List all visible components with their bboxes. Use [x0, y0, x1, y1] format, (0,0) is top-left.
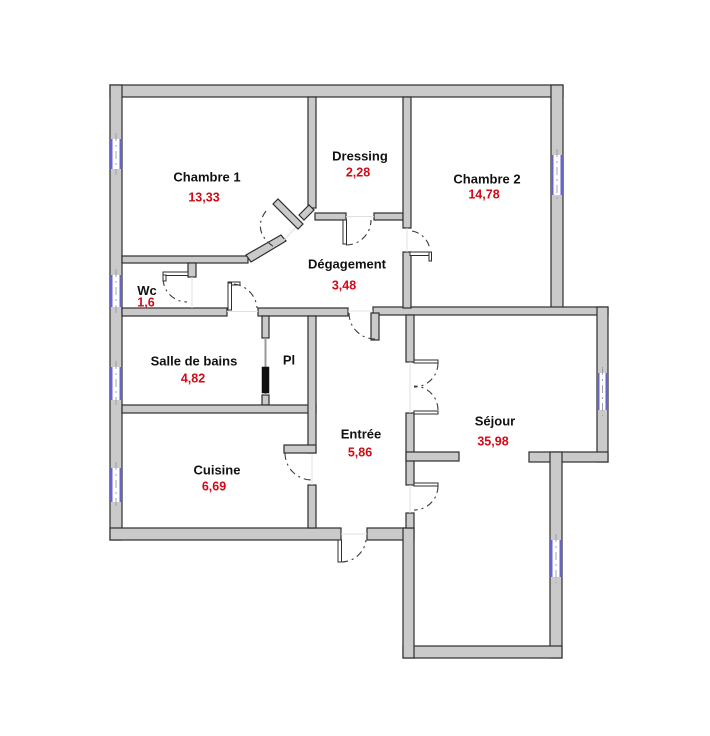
floor-plan: Chambre 1 13,33 Dressing 2,28 Chambre 2 …: [0, 0, 710, 736]
room-area-salle-de-bains: 4,82: [181, 372, 205, 386]
room-area-degagement: 3,48: [332, 279, 356, 293]
wall-segment: [403, 252, 411, 308]
wall-segment-chamfer: [246, 235, 286, 262]
door-cuisine: [284, 445, 316, 480]
sliding-door-icon: [262, 367, 269, 393]
room-label-degagement: Dégagement: [308, 257, 387, 272]
door-wc: [163, 272, 188, 302]
wall-segment: [406, 413, 414, 485]
wall-segment: [262, 395, 269, 405]
wall-segment: [374, 213, 403, 220]
wall-segment: [403, 97, 411, 228]
wall-segment: [122, 405, 316, 413]
room-label-entree: Entrée: [341, 427, 381, 442]
wall-segment: [551, 85, 563, 308]
wall-segment: [308, 97, 316, 208]
door-main-entrance: [338, 540, 366, 562]
wall-segment: [258, 308, 348, 316]
wall-segment: [110, 528, 341, 540]
wall-segment: [308, 485, 316, 528]
door-dressing: [343, 220, 371, 245]
window-sejour-right: [597, 367, 608, 416]
wall-segment: [403, 528, 414, 658]
wall-segment: [110, 85, 563, 97]
window-salle-de-bains: [110, 361, 122, 406]
room-area-chambre-2: 14,78: [468, 188, 499, 202]
door-degagement-entree: [349, 313, 379, 340]
door-chambre-2: [410, 231, 432, 261]
room-label-salle-de-bains: Salle de bains: [151, 354, 238, 369]
room-area-entree: 5,86: [348, 446, 372, 460]
wall-segment: [529, 452, 608, 462]
wall-segment: [122, 256, 248, 263]
room-label-chambre-1: Chambre 1: [173, 170, 240, 185]
room-area-sejour: 35,98: [477, 435, 508, 449]
room-labels: Chambre 1 13,33 Dressing 2,28 Chambre 2 …: [137, 149, 520, 494]
window-chambre-2: [551, 149, 563, 201]
room-label-placard: Pl: [283, 353, 295, 368]
wall-segment: [308, 316, 316, 453]
double-door-sejour: [414, 360, 438, 414]
door-sejour-lower: [414, 483, 438, 510]
room-area-dressing: 2,28: [346, 166, 370, 180]
room-area-chambre-1: 13,33: [188, 191, 219, 205]
room-label-chambre-2: Chambre 2: [453, 172, 520, 187]
window-cuisine: [110, 462, 122, 508]
wall-segment: [188, 263, 196, 277]
room-area-wc: 1,6: [137, 296, 154, 310]
wall-segment: [403, 646, 562, 658]
floor-plan-svg: Chambre 1 13,33 Dressing 2,28 Chambre 2 …: [0, 0, 710, 736]
wall-segment: [406, 452, 459, 461]
room-label-cuisine: Cuisine: [194, 463, 241, 478]
room-label-dressing: Dressing: [332, 149, 388, 164]
wall-segment-chamfer: [299, 205, 314, 220]
window-sejour-lower: [550, 534, 562, 583]
room-area-cuisine: 6,69: [202, 480, 226, 494]
wall-segment: [315, 213, 346, 220]
door-salle-de-bains: [228, 282, 257, 310]
wall-segment: [406, 513, 414, 528]
room-label-sejour: Séjour: [475, 414, 515, 429]
wall-segment: [262, 316, 269, 338]
window-chambre-1: [110, 133, 122, 175]
window-wc: [110, 269, 122, 313]
wall-segment: [406, 315, 414, 362]
